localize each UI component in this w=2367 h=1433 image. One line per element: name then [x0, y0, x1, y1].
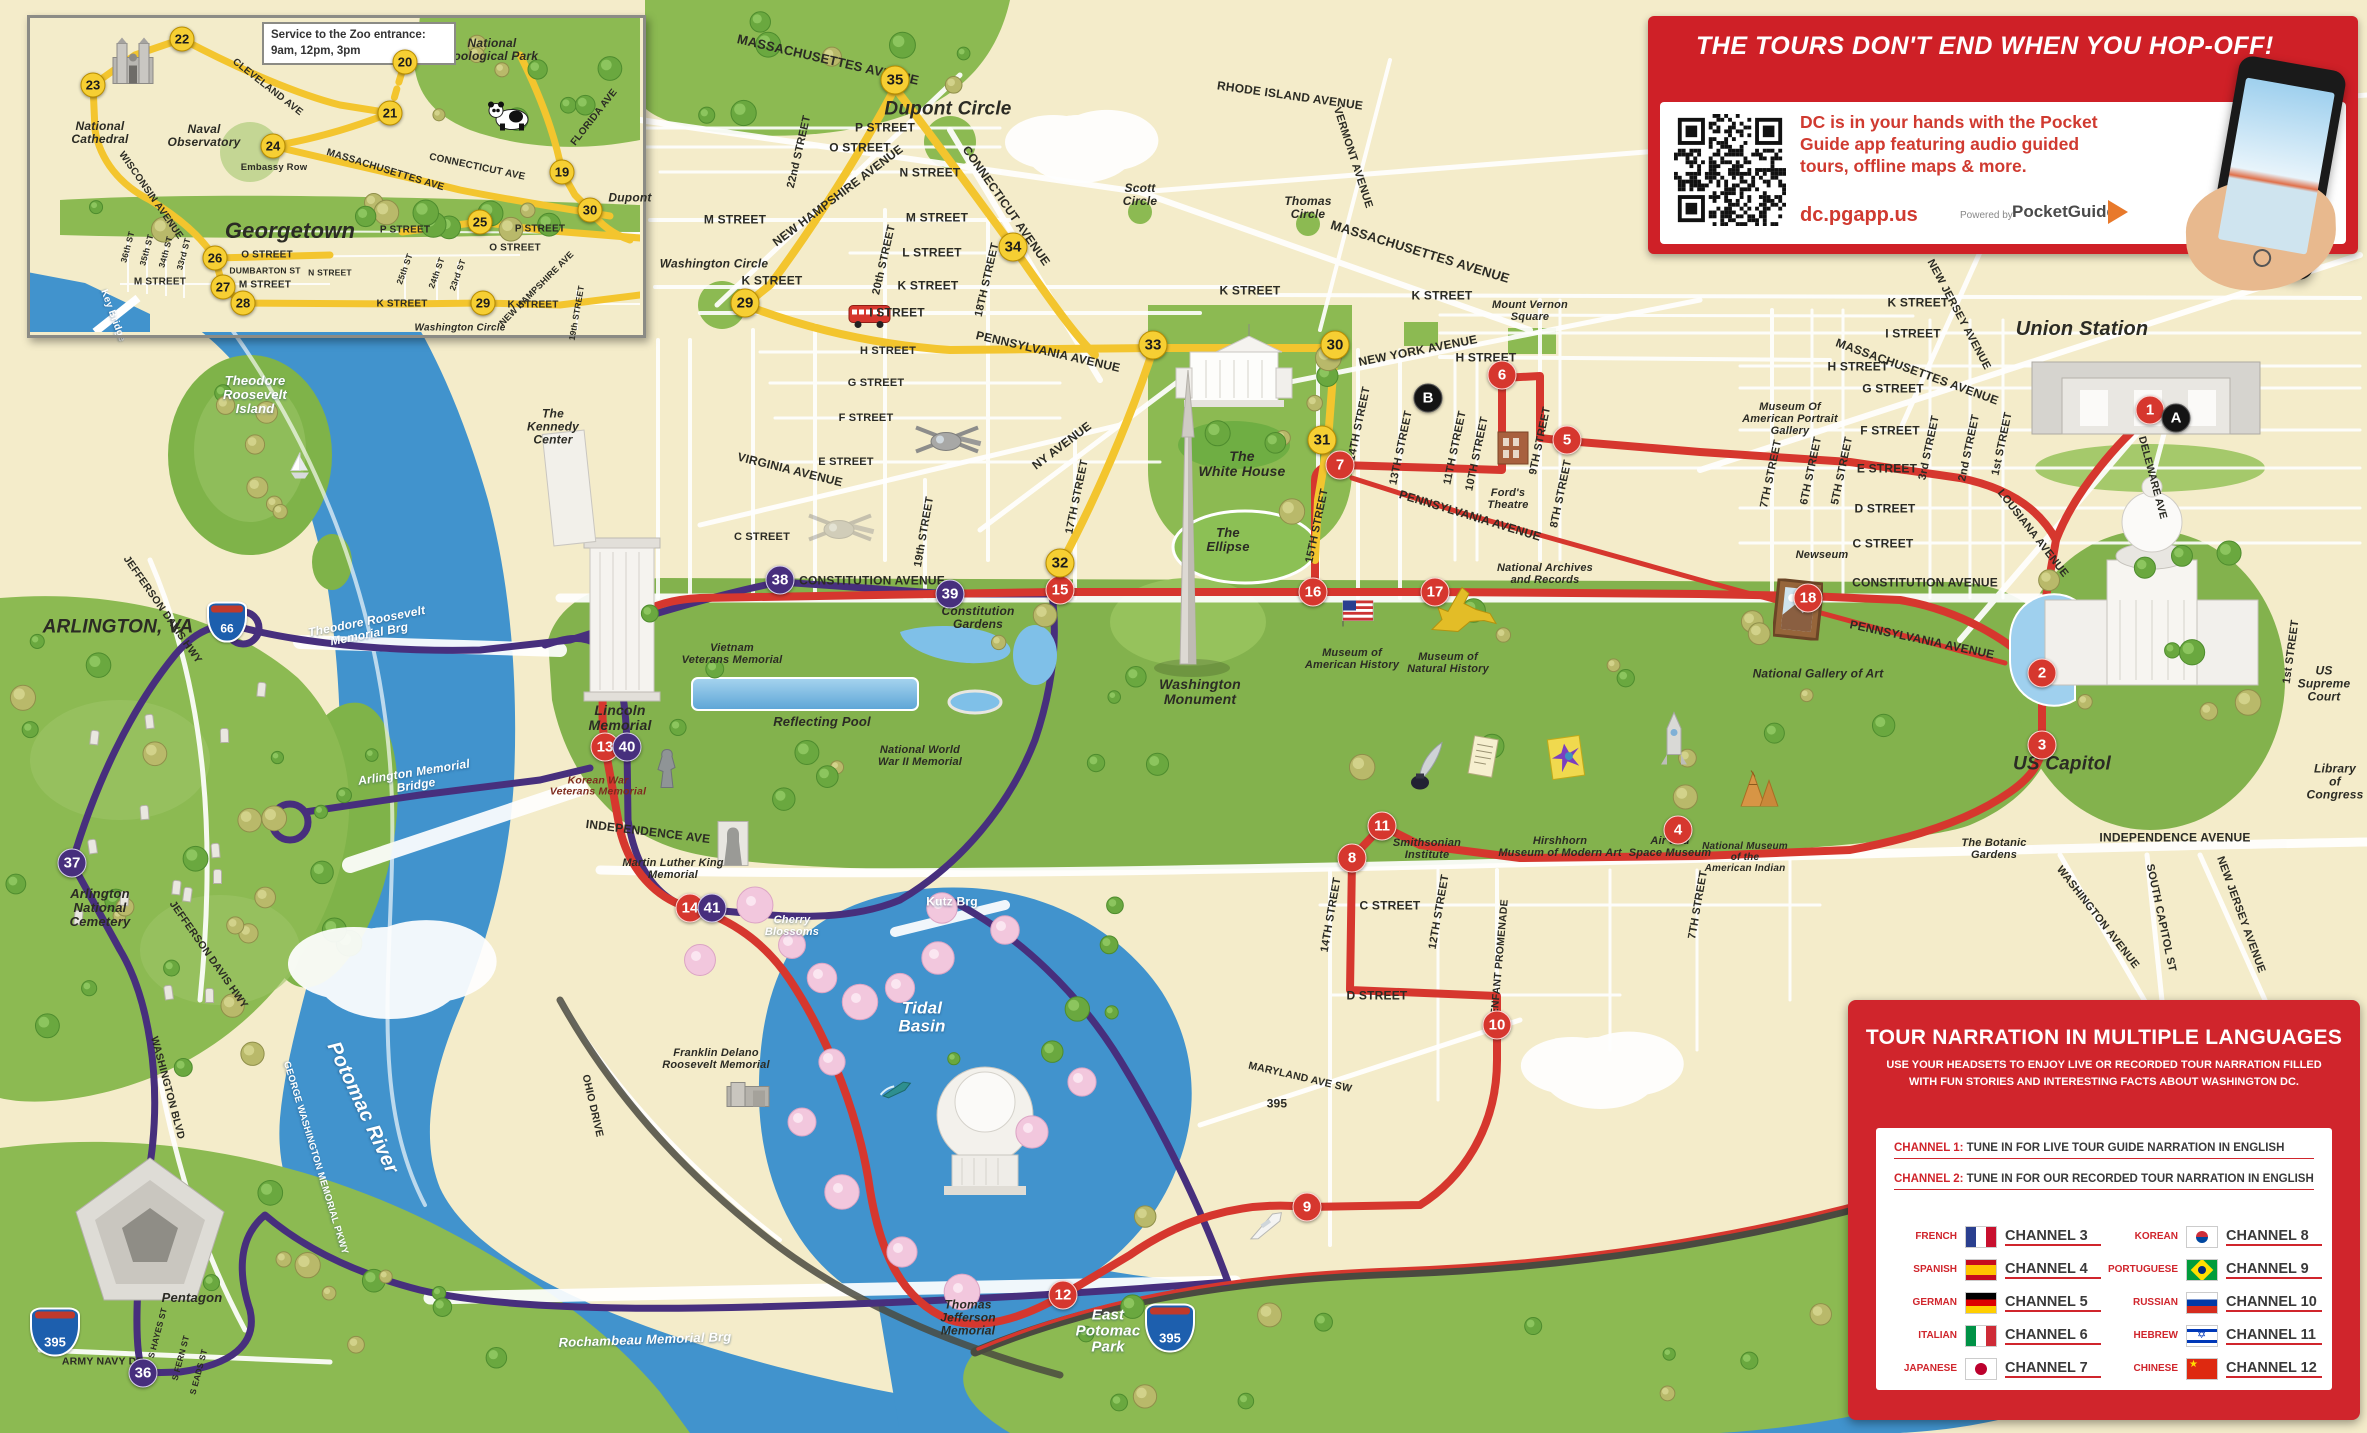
language-row-portuguese: PORTUGUESECHANNEL 9: [2107, 1253, 2322, 1286]
label-constitution-avenue: CONSTITUTION AVENUE: [799, 575, 945, 588]
art-icon: [1546, 735, 1586, 786]
label-i-street: I STREET: [869, 307, 925, 320]
label-washington-avenue: WASHINGTON AVENUE: [2053, 864, 2140, 971]
label-national-gallery-of-art: National Gallery of Art: [1753, 668, 1884, 681]
stop-purple-37: 37: [58, 849, 87, 878]
language-name: CHINESE: [2134, 1363, 2178, 1374]
banner-body-text: DC is in your hands with the Pocket Guid…: [1800, 112, 2100, 178]
label-theodore: Theodore Roosevelt Island: [223, 374, 287, 416]
label-hirshhorn: Hirshhorn Museum of Modern Art: [1498, 836, 1621, 860]
language-row-spanish: SPANISHCHANNEL 4: [1886, 1253, 2101, 1286]
channel-2-text: TUNE IN FOR OUR RECORDED TOUR NARRATION …: [1963, 1173, 2313, 1185]
dc-tour-map: MASSACHUSETTES AVENUERHODE ISLAND AVENUE…: [0, 0, 2367, 1433]
language-channel: CHANNEL 6: [2005, 1327, 2101, 1345]
stop-purple-36: 36: [129, 1359, 158, 1388]
label-5th-street: 5TH STREET: [1830, 436, 1856, 506]
cloud-icon: [338, 927, 442, 973]
label-f-street: F STREET: [839, 413, 894, 425]
label-l-enfant-promenade: L'ENFANT PROMENADE: [1489, 899, 1511, 1025]
label-washington: Washington Monument: [1159, 677, 1241, 707]
label-k-street: K STREET: [742, 275, 803, 288]
label-6th-street: 6TH STREET: [1799, 436, 1825, 506]
stop-yellow-35: 35: [881, 66, 910, 95]
interstate-395-shield-icon: 395: [1145, 1304, 1195, 1353]
stop-red-2: 2: [2028, 659, 2057, 688]
stop-purple-40: 40: [613, 733, 642, 762]
inset-label-dumbarton-st: DUMBARTON ST: [229, 266, 300, 275]
label-massachusettes-avenue: MASSACHUSETTES AVENUE: [1329, 218, 1511, 286]
stop-purple-41: 41: [698, 894, 727, 923]
stop-red-10: 10: [1483, 1011, 1512, 1040]
label-k-street: K STREET: [898, 280, 959, 293]
label-franklin-delano: Franklin Delano Roosevelt Memorial: [662, 1048, 770, 1072]
tombstone-icon: [220, 728, 229, 743]
label-pennsylvania-avenue: PENNSYLVANIA AVENUE: [975, 329, 1122, 375]
language-name: ITALIAN: [1918, 1330, 1957, 1341]
stop-red-4: 4: [1664, 816, 1693, 845]
label-7th-street: 7TH STREET: [1687, 870, 1711, 940]
inset-label-key-bridge: Key Bridge: [98, 288, 127, 343]
inset-label-n-street: N STREET: [308, 268, 352, 277]
stop-red-5: 5: [1553, 426, 1582, 455]
stop-red-1: 1: [2136, 396, 2165, 425]
label-constitution-avenue: CONSTITUTION AVENUE: [1852, 577, 1998, 590]
inset-stop-yellow-24: 24: [261, 134, 286, 159]
label-maryland-ave-sw: MARYLAND AVE SW: [1247, 1061, 1353, 1096]
stop-red-3: 3: [2028, 731, 2057, 760]
inset-stop-yellow-29: 29: [471, 291, 496, 316]
inset-stop-yellow-25: 25: [468, 210, 493, 235]
label-18th-street: 18TH STREET: [974, 242, 1003, 318]
label-l-street: L STREET: [902, 247, 961, 260]
label-395: 395: [1267, 1098, 1288, 1111]
inset-label-massachusettes-ave: MASSACHUSETTES AVE: [325, 148, 445, 194]
stop-purple-38: 38: [766, 566, 795, 595]
stop-red-8: 8: [1338, 844, 1367, 873]
language-channel: CHANNEL 11: [2226, 1327, 2322, 1345]
language-row-chinese: CHINESE★CHANNEL 12: [2107, 1352, 2322, 1385]
language-name: SPANISH: [1913, 1264, 1957, 1275]
label-14th-street: 14TH STREET: [1346, 386, 1373, 462]
rocket-icon: [1661, 711, 1687, 774]
label-15th-street: 15TH STREET: [1304, 488, 1331, 564]
quill-icon: [1408, 741, 1452, 796]
tombstone-icon: [89, 729, 100, 745]
label-20th-street: 20th STREET: [871, 224, 899, 296]
label-g-street: G STREET: [1862, 383, 1924, 396]
inset-label-m-street: M STREET: [239, 281, 291, 292]
label-the-botanic: The Botanic Gardens: [1961, 838, 2026, 862]
inset-label-washington-circle: Washington Circle: [414, 324, 505, 335]
inset-stop-yellow-19: 19: [550, 160, 575, 185]
stop-yellow-31: 31: [1308, 426, 1337, 455]
label-d-street: D STREET: [1855, 503, 1916, 516]
panda-icon: [485, 100, 531, 137]
stop-red-18: 18: [1794, 584, 1823, 613]
inset-stop-yellow-22: 22: [170, 27, 195, 52]
label-reflecting-pool: Reflecting Pool: [773, 715, 871, 729]
language-name: FRENCH: [1915, 1231, 1957, 1242]
label-n-street: N STREET: [900, 167, 961, 180]
language-row-korean: KOREANCHANNEL 8: [2107, 1220, 2322, 1253]
flag-cn-icon: ★: [2186, 1358, 2218, 1380]
label-thomas: Thomas Circle: [1284, 195, 1331, 221]
label-e-street: E STREET: [818, 457, 873, 469]
zoo-service-note: Service to the Zoo entrance: 9am, 12pm, …: [262, 22, 456, 65]
label-independence-avenue: INDEPENDENCE AVENUE: [2099, 832, 2250, 845]
flag-it-icon: [1965, 1325, 1997, 1347]
label-scott: Scott Circle: [1123, 182, 1158, 208]
stop-yellow-30: 30: [1321, 331, 1350, 360]
language-row-french: FRENCHCHANNEL 3: [1886, 1220, 2101, 1253]
label-3rd-street: 3rd STREET: [1917, 415, 1942, 482]
language-name: RUSSIAN: [2133, 1297, 2178, 1308]
label-the: The Ellipse: [1206, 526, 1249, 554]
inset-label-33rd-st: 33rd ST: [175, 237, 192, 271]
label-ford-s: Ford's Theatre: [1487, 488, 1528, 512]
label-ohio-drive: OHIO DRIVE: [579, 1074, 604, 1139]
stop-yellow-34: 34: [999, 233, 1028, 262]
inset-label-k-street: K STREET: [507, 301, 558, 312]
speedboat-icon: [877, 1073, 917, 1106]
flag-il-icon: ✡: [2186, 1325, 2218, 1347]
inset-label-connecticut-ave: CONNECTICUT AVE: [428, 153, 526, 184]
label-k-street: K STREET: [1220, 285, 1281, 298]
label-jefferson-davis-hwy: JEFFERSON DAVIS HWY: [121, 554, 204, 666]
tombstone-icon: [171, 879, 182, 895]
narration-languages-box: TOUR NARRATION IN MULTIPLE LANGUAGES USE…: [1848, 1000, 2360, 1420]
label-1st-street: 1st STREET: [1991, 411, 2016, 476]
inset-label-dupont: Dupont: [608, 192, 651, 205]
powered-by-label: Powered by: [1960, 210, 2013, 221]
label-k-street: K STREET: [1888, 297, 1949, 310]
inset-stop-yellow-30: 30: [578, 198, 603, 223]
heli-icon: [801, 504, 885, 557]
label-7th-street: 7TH STREET: [1759, 439, 1785, 509]
label-22nd-street: 22nd STREET: [786, 114, 814, 189]
label-library: Library of Congress: [2307, 763, 2364, 802]
label-cherry: Cherry Blossoms: [765, 915, 819, 939]
banner-header: THE TOURS DON'T END WHEN YOU HOP-OFF!: [1648, 16, 2358, 61]
stop-red-17: 17: [1421, 578, 1450, 607]
tombstone-icon: [144, 713, 155, 729]
banner-panel: DC is in your hands with the Pocket Guid…: [1660, 102, 2346, 244]
inset-label-m-street: M STREET: [134, 278, 186, 289]
narration-title: TOUR NARRATION IN MULTIPLE LANGUAGES: [1848, 1000, 2360, 1050]
label-smithsonian: Smithsonian Institute: [1393, 838, 1461, 862]
label-us-capitol: US Capitol: [2013, 755, 2111, 776]
service-note-line2: 9am, 12pm, 3pm: [271, 44, 447, 60]
label-rochambeau-memorial-brg: Rochambeau Memorial Brg: [558, 1330, 731, 1350]
label-c-street: C STREET: [1360, 900, 1421, 913]
inset-label-p-street: P STREET: [515, 225, 565, 236]
doc-icon: [1466, 736, 1500, 785]
flag-ru-icon: [2186, 1292, 2218, 1314]
fdr-icon: [725, 1081, 771, 1116]
channel-1-text: TUNE IN FOR LIVE TOUR GUIDE NARRATION IN…: [1963, 1142, 2284, 1154]
label-tidal: Tidal Basin: [898, 1000, 945, 1037]
stop-red-6: 6: [1488, 361, 1517, 390]
label-us: US Supreme Court: [2298, 665, 2351, 704]
label-constitution: Constitution Gardens: [941, 605, 1014, 631]
label-h-street: H STREET: [1828, 361, 1889, 374]
label-pentagon: Pentagon: [162, 1291, 223, 1305]
inset-label-24th-st: 24th ST: [427, 256, 447, 289]
teepee-icon: [1727, 769, 1779, 812]
inset-label-georgetown: Georgetown: [225, 219, 355, 243]
label-national-archives: National Archives and Records: [1497, 563, 1593, 587]
label-the: The White House: [1199, 449, 1286, 479]
label-m-street: M STREET: [906, 212, 968, 225]
tombstone-icon: [182, 887, 193, 903]
stop-yellow-32: 32: [1046, 549, 1075, 578]
language-channel: CHANNEL 12: [2226, 1360, 2322, 1378]
language-row-italian: ITALIANCHANNEL 6: [1886, 1319, 2101, 1352]
language-row-russian: RUSSIANCHANNEL 10: [2107, 1286, 2322, 1319]
inset-stop-yellow-21: 21: [378, 101, 403, 126]
inset-label-25th-st: 25th ST: [395, 252, 415, 285]
label-washington-blvd: WASHINGTON BLVD: [148, 1035, 186, 1140]
language-channel: CHANNEL 5: [2005, 1294, 2101, 1312]
inset-label-wisconsin-avenue: WISCONSIN AVENUE: [116, 150, 185, 242]
label-washington-circle: Washington Circle: [660, 258, 769, 271]
label-17th-street: 17TH STREET: [1064, 459, 1091, 535]
stop-red-12: 12: [1049, 1281, 1078, 1310]
language-name: JAPANESE: [1904, 1363, 1957, 1374]
label-d-street: D STREET: [1347, 990, 1408, 1003]
stop-yellow-33: 33: [1139, 331, 1168, 360]
label-museum-of: Museum of Natural History: [1407, 652, 1489, 676]
label-s-fern-st: S FERN ST: [171, 1334, 192, 1381]
label-c-street: C STREET: [1853, 538, 1914, 551]
inset-label-19th-street: 19th STREET: [568, 285, 587, 341]
language-row-german: GERMANCHANNEL 5: [1886, 1286, 2101, 1319]
stop-black-A: A: [2162, 404, 2191, 433]
cloud-icon: [1560, 1037, 1641, 1073]
inset-stop-yellow-28: 28: [231, 291, 256, 316]
church-icon: [105, 38, 161, 95]
label-potomac-river: Potomac River: [322, 1039, 402, 1177]
inset-label-35th-st: 35th ST: [138, 233, 155, 266]
inset-label-naval: Naval Observatory: [168, 123, 241, 149]
label-lousiana-avenue: LOUSIANA AVENUE: [1994, 488, 2070, 580]
pocketguide-logo: PocketGuide: [2012, 202, 2116, 222]
whiteboat-icon: [1242, 1205, 1291, 1249]
label-vermont-avenue: VERMONT AVENUE: [1330, 106, 1374, 210]
channel-2-label: CHANNEL 2:: [1894, 1173, 1963, 1185]
label-12th-street: 12TH STREET: [1428, 874, 1453, 950]
stop-red-15: 15: [1046, 576, 1075, 605]
language-channel: CHANNEL 7: [2005, 1360, 2101, 1378]
label-the: The Kennedy Center: [527, 408, 579, 447]
banner-url: dc.pgapp.us: [1800, 204, 1918, 227]
sailboat-icon: [289, 451, 311, 486]
label-13th-street: 13TH STREET: [1388, 410, 1415, 486]
tombstone-icon: [257, 681, 267, 697]
statue-icon: [653, 748, 681, 797]
inset-label-k-street: K STREET: [376, 300, 427, 311]
label-lincoln: Lincoln Memorial: [588, 703, 651, 733]
language-channel: CHANNEL 10: [2226, 1294, 2322, 1312]
label-mount-vernon: Mount Vernon Square: [1492, 300, 1568, 324]
flag-de-icon: [1965, 1292, 1997, 1314]
inset-label-36th-st: 36th ST: [119, 230, 136, 263]
inset-stop-yellow-23: 23: [81, 73, 106, 98]
label-s-hayes-st: S HAYES ST: [147, 1307, 169, 1359]
flag-es-icon: [1965, 1259, 1997, 1281]
narration-subtitle: USE YOUR HEADSETS TO ENJOY LIVE OR RECOR…: [1848, 1050, 2360, 1090]
label-8th-street: 8TH STREET: [1549, 459, 1575, 529]
label-new-jersey-avenue: NEW JERSEY AVENUE: [1924, 258, 1992, 372]
stop-red-16: 16: [1299, 578, 1328, 607]
label-martin-luther-king: Martin Luther King Memorial: [622, 858, 723, 882]
inset-label-national: National Cathedral: [71, 120, 128, 146]
language-name: PORTUGUESE: [2108, 1264, 2178, 1275]
label-national-museum: National Museum of the American Indian: [1702, 842, 1788, 874]
label-arlington: Arlington National Cemetery: [70, 887, 131, 929]
tombstone-icon: [205, 988, 214, 1003]
language-name: KOREAN: [2135, 1231, 2178, 1242]
language-channel: CHANNEL 3: [2005, 1228, 2101, 1246]
label-19th-street: 19th STREET: [913, 496, 937, 568]
stop-purple-39: 39: [936, 580, 965, 609]
inset-label-new-hampshire-ave: NEW HAMPSHIRE AVE: [498, 250, 576, 328]
tombstone-icon: [210, 842, 220, 858]
label-c-street: C STREET: [734, 532, 790, 544]
inset-stop-yellow-26: 26: [203, 246, 228, 271]
inset-label-34th-st: 34th ST: [157, 235, 174, 268]
flag-kr-icon: [2186, 1226, 2218, 1248]
label-9th-street: 9TH STREET: [1528, 406, 1554, 476]
inset-label-embassy-row: Embassy Row: [241, 163, 308, 173]
tombstone-icon: [163, 984, 174, 1000]
tombstone-icon: [140, 805, 150, 821]
stop-black-B: B: [1414, 384, 1443, 413]
label-arlington-memorial: Arlington Memorial Bridge: [357, 757, 473, 800]
label-i-street: I STREET: [1885, 328, 1941, 341]
label-east: East Potomac Park: [1076, 1308, 1141, 1357]
tombstone-icon: [87, 839, 98, 855]
inset-label-o-street: O STREET: [241, 251, 293, 262]
label-george-washington-memorial-pkwy: GEORGE WASHINGTON MEMORIAL PKWY: [281, 1060, 350, 1255]
service-note-line1: Service to the Zoo entrance:: [271, 28, 447, 44]
label-theodore-roosevelt: Theodore Roosevelt Memorial Brg: [307, 604, 429, 652]
usflag-icon: [1341, 601, 1375, 632]
language-name: HEBREW: [2134, 1330, 2178, 1341]
stop-red-7: 7: [1326, 451, 1355, 480]
label-newseum: Newseum: [1796, 550, 1849, 562]
label-m-street: M STREET: [704, 214, 766, 227]
label-g-street: G STREET: [848, 378, 905, 390]
label-o-street: O STREET: [829, 142, 891, 155]
language-channel: CHANNEL 9: [2226, 1261, 2322, 1279]
label-museum-of: Museum Of American Portrait Gallery: [1742, 402, 1838, 438]
label-national-world: National World War II Memorial: [878, 745, 962, 769]
channel-1-line: CHANNEL 1: TUNE IN FOR LIVE TOUR GUIDE N…: [1894, 1142, 2314, 1159]
pocket-guide-banner: THE TOURS DON'T END WHEN YOU HOP-OFF! DC…: [1648, 16, 2358, 254]
stop-red-9: 9: [1293, 1193, 1322, 1222]
label-14th-street: 14TH STREET: [1320, 877, 1345, 953]
phone-icon: [2204, 54, 2347, 282]
channel-2-line: CHANNEL 2: TUNE IN FOR OUR RECORDED TOUR…: [1894, 1173, 2314, 1190]
label-south-capitol-st: SOUTH CAPITOL ST: [2143, 863, 2177, 973]
label-deleware-ave: DELEWARE AVE: [2135, 435, 2168, 520]
stop-yellow-29: 29: [731, 289, 760, 318]
qr-code-icon: [1674, 114, 1786, 226]
tombstone-icon: [213, 869, 222, 884]
label-h-street: H STREET: [860, 346, 916, 358]
inset-label-23rd-st: 23rd ST: [448, 258, 468, 292]
label-korean-war: Korean War Veterans Memorial: [550, 776, 646, 799]
label-10th-street: 10TH STREET: [1464, 416, 1491, 492]
label-f-street: F STREET: [1860, 425, 1920, 438]
language-channel: CHANNEL 4: [2005, 1261, 2101, 1279]
label-kutz-brg: Kutz Brg: [926, 896, 978, 909]
flag-br-icon: [2186, 1259, 2218, 1281]
narration-panel: CHANNEL 1: TUNE IN FOR LIVE TOUR GUIDE N…: [1876, 1128, 2332, 1390]
label-p-street: P STREET: [855, 122, 915, 135]
inset-label-p-street: P STREET: [380, 226, 430, 237]
label-e-street: E STREET: [1857, 463, 1917, 476]
heli-icon: [908, 416, 992, 469]
inset-label-national: National Zoological Park: [446, 37, 538, 63]
cloud-icon: [1042, 115, 1119, 149]
pocketguide-arrow-icon: [2108, 200, 2128, 224]
label-2nd-street: 2nd STREET: [1957, 414, 1983, 483]
language-channel: CHANNEL 8: [2226, 1228, 2322, 1246]
interstate-395-shield-icon: 395: [30, 1308, 80, 1357]
label-s-eads-st: S EADS ST: [189, 1348, 210, 1395]
language-channel-grid: FRENCHCHANNEL 3KOREANCHANNEL 8SPANISHCHA…: [1886, 1220, 2322, 1382]
language-row-hebrew: HEBREW✡CHANNEL 11: [2107, 1319, 2322, 1352]
label-independence-ave: INDEPENDENCE AVE: [585, 818, 711, 846]
inset-label-cleveland-ave: CLEVELAND AVE: [230, 57, 304, 118]
inset-label-o-street: O STREET: [489, 244, 541, 255]
label-new-jersey-avenue: NEW JERSEY AVENUE: [2213, 855, 2266, 975]
label-vietnam: Vietnam Veterans Memorial: [682, 643, 783, 667]
language-name: GERMAN: [1913, 1297, 1957, 1308]
flag-jp-icon: [1965, 1358, 1997, 1380]
inset-stop-yellow-20: 20: [393, 50, 418, 75]
inset-label-florida-ave: FLORIDA AVE: [570, 88, 621, 149]
stop-red-11: 11: [1368, 812, 1397, 841]
flag-fr-icon: [1965, 1226, 1997, 1248]
label-k-street: K STREET: [1412, 290, 1473, 303]
label-pennsylvania-avenue: PENNSYLVANIA AVENUE: [1848, 618, 1995, 661]
label-thomas: Thomas Jefferson Memorial: [940, 1299, 996, 1338]
channel-1-label: CHANNEL 1:: [1894, 1142, 1963, 1154]
label-dupont-circle: Dupont Circle: [884, 100, 1011, 121]
label-union-station: Union Station: [2016, 319, 2149, 341]
language-row-japanese: JAPANESECHANNEL 7: [1886, 1352, 2101, 1385]
interstate-66-shield-icon: 66: [207, 602, 247, 643]
label-museum-of: Museum of American History: [1305, 648, 1399, 672]
